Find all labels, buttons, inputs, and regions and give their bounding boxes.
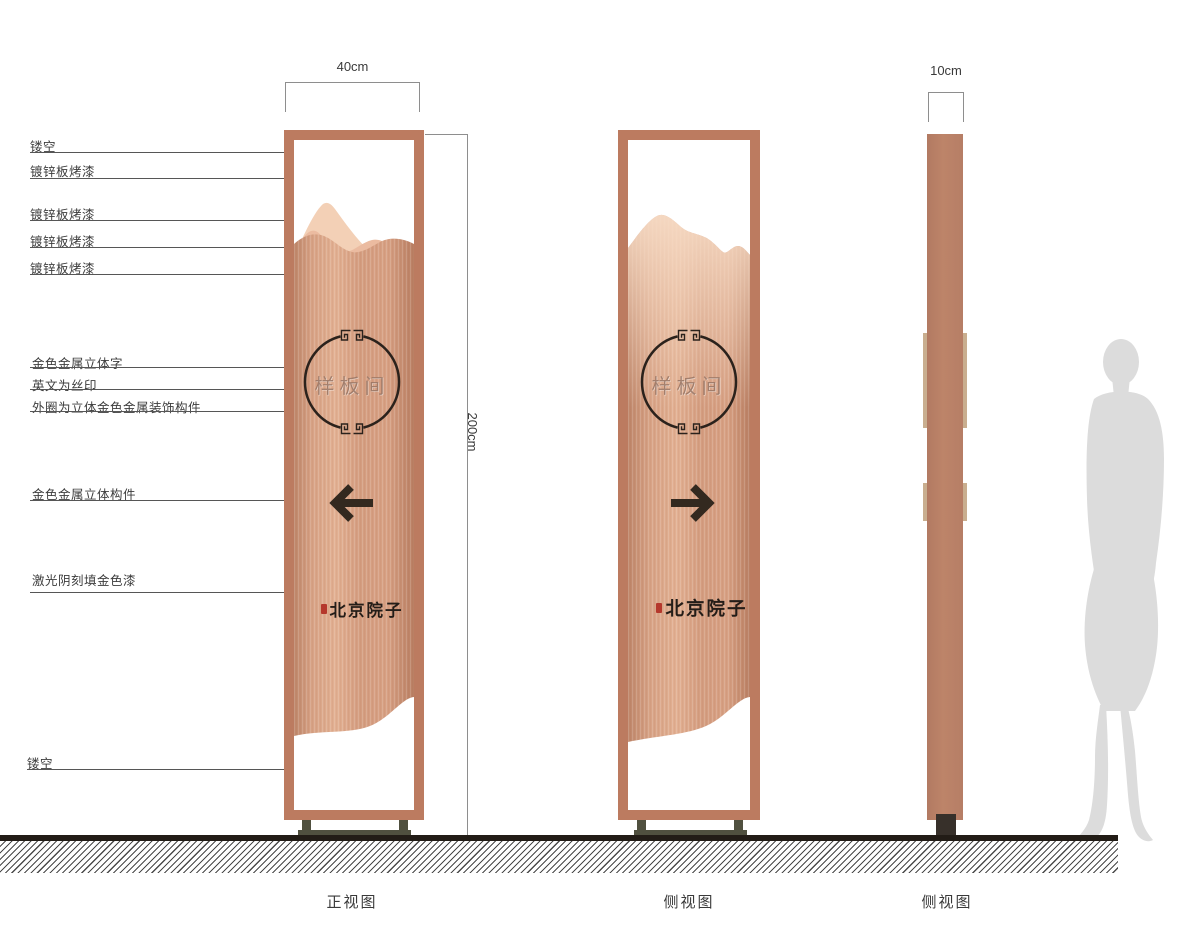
brushed-copper-panel [294, 228, 414, 740]
front-panel-art [294, 140, 414, 810]
signage-drawing-canvas: 镂空 镀锌板烤漆 镀锌板烤漆 镀锌板烤漆 镀锌板烤漆 金色金属立体字 英文为丝印… [0, 0, 1195, 927]
dimension-tick [928, 92, 929, 122]
brand-logo: 北京院子 [306, 597, 418, 621]
leader-line [30, 247, 286, 248]
profile-arrow-trim [923, 483, 927, 521]
dimension-width-label: 40cm [285, 59, 420, 74]
side-panel-art [628, 140, 750, 810]
leader-line [30, 411, 318, 412]
view-caption-profile: 侧视图 [902, 891, 992, 912]
leader-line [30, 220, 293, 221]
annotation-label: 金色金属立体字 [32, 353, 123, 372]
leader-line [30, 178, 284, 179]
sample-room-label: 样板间 [641, 370, 737, 399]
seal-icon [321, 604, 327, 614]
leader-line [27, 769, 302, 770]
profile-ornament-trim [963, 333, 967, 428]
dimension-tick [963, 92, 964, 122]
dimension-depth-line [928, 92, 964, 93]
front-view-frame [284, 130, 424, 820]
dimension-tick [285, 82, 286, 112]
brand-logo-text: 北京院子 [330, 597, 404, 621]
view-caption-side: 侧视图 [644, 891, 734, 912]
dimension-tick [419, 82, 420, 112]
annotation-label: 英文为丝印 [32, 375, 97, 394]
dimension-height-tick [425, 134, 467, 135]
side-view-frame [618, 130, 760, 820]
dimension-width-line [285, 82, 420, 83]
seal-icon [656, 603, 662, 613]
sample-room-label: 样板间 [304, 370, 400, 399]
leader-line [30, 274, 291, 275]
view-caption-front: 正视图 [307, 891, 397, 912]
annotation-label: 外圈为立体金色金属装饰构件 [32, 397, 201, 416]
brand-logo: 北京院子 [644, 595, 760, 621]
profile-bar [927, 134, 963, 820]
dimension-depth-label: 10cm [920, 63, 972, 78]
brushed-copper-panel [628, 208, 750, 742]
annotation-label: 激光阴刻填金色漆 [32, 570, 136, 589]
ground-hatch [0, 841, 1118, 873]
profile-ornament-trim [923, 333, 927, 428]
profile-arrow-trim [963, 483, 967, 521]
brand-logo-text: 北京院子 [665, 595, 747, 621]
dimension-height-line [467, 134, 468, 837]
human-silhouette [1032, 337, 1174, 847]
leader-line [30, 592, 300, 593]
leader-line [30, 152, 306, 153]
dimension-height-label: 200cm [466, 402, 480, 462]
